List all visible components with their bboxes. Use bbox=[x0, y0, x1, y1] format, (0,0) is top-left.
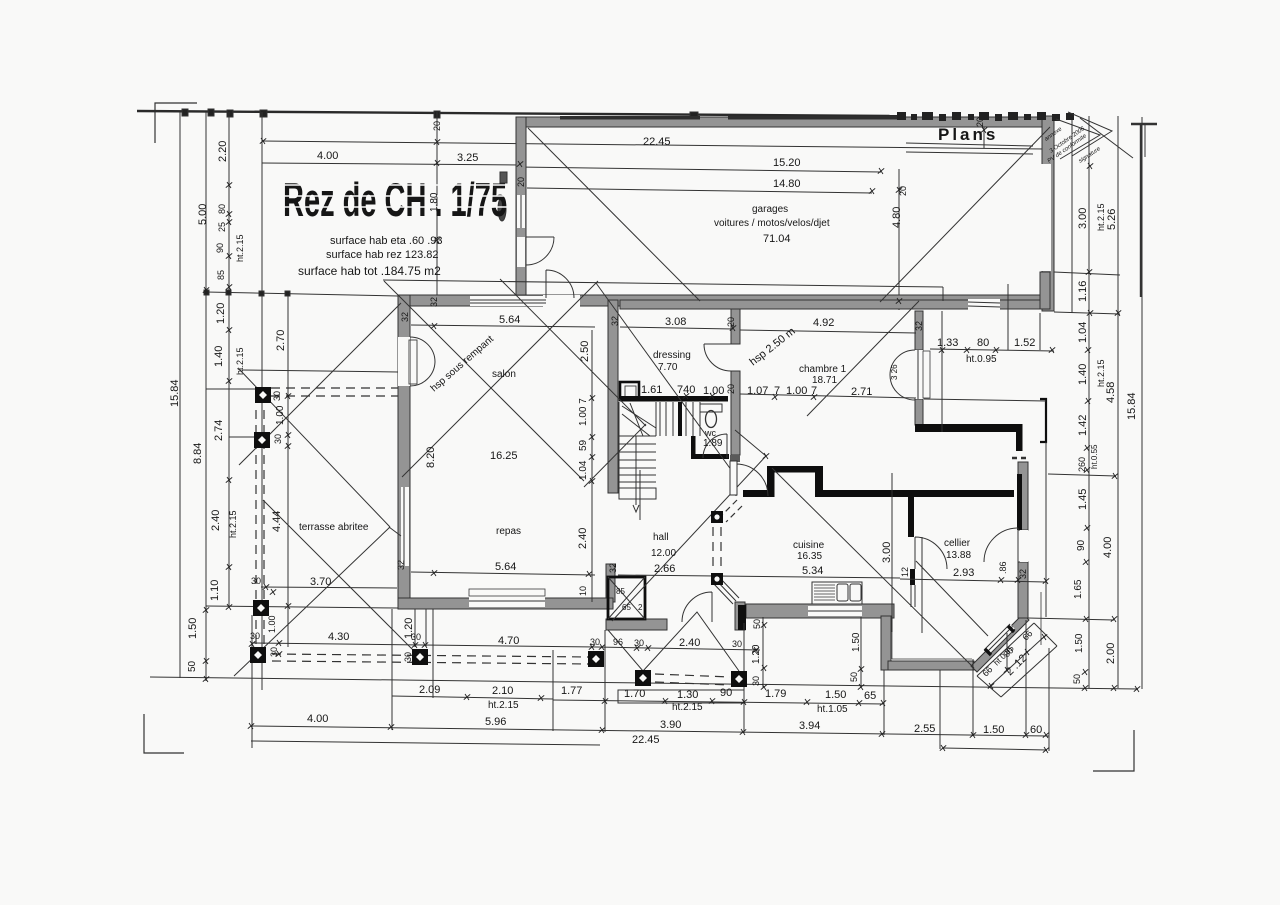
svg-text:50: 50 bbox=[1072, 674, 1082, 684]
svg-text:1.20: 1.20 bbox=[751, 644, 762, 664]
svg-text:surface hab eta .60 .93: surface hab eta .60 .93 bbox=[330, 235, 443, 247]
svg-text:12.00: 12.00 bbox=[651, 548, 676, 559]
svg-text:Plans: Plans bbox=[938, 125, 998, 144]
svg-text:1.16: 1.16 bbox=[1077, 281, 1089, 302]
svg-text:30: 30 bbox=[403, 652, 413, 662]
svg-text:30: 30 bbox=[269, 647, 279, 657]
svg-text:1.07: 1.07 bbox=[747, 385, 768, 397]
svg-text:20: 20 bbox=[898, 186, 908, 196]
svg-text:740: 740 bbox=[677, 384, 695, 396]
svg-text:1.50: 1.50 bbox=[187, 618, 199, 639]
svg-text:1.89: 1.89 bbox=[703, 438, 723, 449]
svg-text:4.30: 4.30 bbox=[328, 631, 349, 643]
svg-text:ht.0.95: ht.0.95 bbox=[966, 354, 997, 365]
svg-text:3.25: 3.25 bbox=[457, 152, 478, 164]
svg-text:80: 80 bbox=[977, 337, 989, 349]
svg-text:7: 7 bbox=[811, 385, 817, 397]
svg-text:20: 20 bbox=[432, 121, 442, 131]
svg-text:30: 30 bbox=[250, 631, 260, 641]
svg-text:ht.2.15: ht.2.15 bbox=[1096, 203, 1106, 231]
svg-text:1.77: 1.77 bbox=[561, 685, 582, 697]
svg-text:ht.2.15: ht.2.15 bbox=[235, 347, 245, 375]
svg-text:13.88: 13.88 bbox=[946, 550, 971, 561]
svg-text:ht.2.15: ht.2.15 bbox=[228, 510, 238, 538]
svg-text:hall: hall bbox=[653, 532, 669, 543]
svg-text:4.00: 4.00 bbox=[307, 713, 328, 725]
svg-text:32: 32 bbox=[610, 316, 620, 326]
svg-text:4.00: 4.00 bbox=[1102, 537, 1114, 558]
svg-text:15.20: 15.20 bbox=[773, 157, 801, 169]
svg-text:32: 32 bbox=[400, 312, 410, 322]
svg-text:1.50: 1.50 bbox=[1074, 633, 1085, 653]
svg-text:90: 90 bbox=[215, 243, 225, 253]
svg-text:1.33: 1.33 bbox=[937, 337, 958, 349]
svg-text:16.35: 16.35 bbox=[797, 551, 822, 562]
svg-text:50: 50 bbox=[752, 619, 762, 629]
svg-text:30: 30 bbox=[751, 676, 761, 686]
svg-text:2.55: 2.55 bbox=[914, 723, 935, 735]
svg-text:1.30: 1.30 bbox=[677, 689, 698, 701]
svg-text:30: 30 bbox=[272, 391, 282, 401]
svg-text:71.04: 71.04 bbox=[763, 233, 791, 245]
svg-text:96: 96 bbox=[613, 637, 623, 647]
svg-text:1.61: 1.61 bbox=[641, 384, 662, 396]
svg-text:hsp sous rempant: hsp sous rempant bbox=[429, 334, 496, 395]
svg-text:cuisine: cuisine bbox=[793, 540, 825, 551]
svg-text:90: 90 bbox=[1076, 539, 1087, 551]
svg-text:5.64: 5.64 bbox=[495, 561, 516, 573]
svg-text:50: 50 bbox=[849, 672, 859, 682]
svg-text:5.34: 5.34 bbox=[802, 565, 823, 577]
svg-text:voitures / motos/velos/djet: voitures / motos/velos/djet bbox=[714, 218, 830, 229]
svg-text:7.70: 7.70 bbox=[658, 362, 678, 373]
svg-text:14.80: 14.80 bbox=[773, 178, 801, 190]
svg-text:1.65: 1.65 bbox=[1073, 579, 1084, 599]
svg-text:5.96: 5.96 bbox=[485, 716, 506, 728]
svg-text:2.00: 2.00 bbox=[1105, 643, 1117, 664]
svg-text:dressing: dressing bbox=[653, 350, 691, 361]
svg-text:59: 59 bbox=[578, 439, 589, 451]
svg-text:terrasse abritee: terrasse abritee bbox=[299, 522, 369, 533]
svg-text:1.00: 1.00 bbox=[786, 385, 807, 397]
svg-text:3.00: 3.00 bbox=[1077, 208, 1089, 229]
svg-text:1.04: 1.04 bbox=[1077, 322, 1089, 343]
svg-text:cellier: cellier bbox=[944, 538, 971, 549]
svg-text:7: 7 bbox=[774, 385, 780, 397]
svg-text:1.45: 1.45 bbox=[1077, 489, 1089, 510]
svg-text:32: 32 bbox=[914, 321, 924, 331]
svg-text:2.20: 2.20 bbox=[217, 141, 229, 162]
svg-text:1.80: 1.80 bbox=[429, 192, 440, 212]
svg-text:ht.0.55: ht.0.55 bbox=[1090, 444, 1099, 469]
svg-text:30: 30 bbox=[590, 637, 600, 647]
svg-text:hsp 2.50 m: hsp 2.50 m bbox=[747, 325, 797, 368]
svg-text:ht.2.15: ht.2.15 bbox=[672, 702, 703, 713]
svg-text:surface hab rez 123.82: surface hab rez 123.82 bbox=[326, 249, 439, 261]
svg-text:1.50: 1.50 bbox=[983, 724, 1004, 736]
svg-text:ht.2.15: ht.2.15 bbox=[488, 700, 519, 711]
svg-text:1.70: 1.70 bbox=[624, 688, 645, 700]
svg-text:1.50: 1.50 bbox=[851, 632, 862, 652]
svg-text:1.00: 1.00 bbox=[275, 405, 286, 425]
svg-text:repas: repas bbox=[496, 526, 521, 537]
svg-text:5.64: 5.64 bbox=[499, 314, 520, 326]
svg-text:signature: signature bbox=[1078, 146, 1103, 165]
svg-text:chambre 1: chambre 1 bbox=[799, 364, 847, 375]
svg-text:2.74: 2.74 bbox=[213, 420, 225, 441]
svg-text:1.52: 1.52 bbox=[1014, 337, 1035, 349]
svg-text:4.58: 4.58 bbox=[1105, 382, 1117, 403]
svg-text:12: 12 bbox=[900, 567, 910, 577]
svg-text:65: 65 bbox=[864, 690, 876, 702]
svg-text:2.40: 2.40 bbox=[210, 510, 222, 531]
svg-text:2.66: 2.66 bbox=[654, 563, 675, 575]
svg-text:1.79: 1.79 bbox=[765, 688, 786, 700]
svg-text:2.40: 2.40 bbox=[577, 528, 589, 549]
svg-text:15.84: 15.84 bbox=[169, 379, 181, 407]
svg-text:22.45: 22.45 bbox=[643, 136, 671, 148]
svg-text:80: 80 bbox=[217, 204, 227, 214]
svg-text:5.26: 5.26 bbox=[1106, 209, 1118, 230]
svg-text:1.42: 1.42 bbox=[1077, 415, 1089, 436]
svg-text:85: 85 bbox=[616, 587, 625, 596]
svg-text:Rez de CH . 1/75: Rez de CH . 1/75 bbox=[283, 173, 507, 226]
svg-text:8.20: 8.20 bbox=[425, 447, 437, 468]
svg-text:3 26: 3 26 bbox=[890, 364, 899, 380]
svg-text:1.00 7: 1.00 7 bbox=[578, 398, 589, 426]
svg-text:22.45: 22.45 bbox=[632, 734, 660, 746]
svg-text:1.00: 1.00 bbox=[267, 615, 277, 633]
svg-text:25: 25 bbox=[217, 222, 227, 232]
svg-text:90: 90 bbox=[720, 687, 732, 699]
svg-text:4.00: 4.00 bbox=[317, 150, 338, 162]
svg-text:1.40: 1.40 bbox=[1077, 364, 1089, 385]
svg-text:1.40: 1.40 bbox=[213, 346, 225, 367]
svg-text:3.94: 3.94 bbox=[799, 720, 820, 732]
svg-text:20: 20 bbox=[726, 317, 736, 327]
svg-text:3.08: 3.08 bbox=[665, 316, 686, 328]
svg-text:2.71: 2.71 bbox=[851, 386, 872, 398]
svg-text:85: 85 bbox=[216, 270, 226, 280]
svg-text:30: 30 bbox=[251, 576, 261, 586]
svg-text:30: 30 bbox=[273, 434, 283, 444]
svg-text:1.00: 1.00 bbox=[703, 385, 724, 397]
svg-text:4.80: 4.80 bbox=[891, 207, 903, 228]
svg-text:1.20: 1.20 bbox=[403, 618, 415, 639]
svg-text:4.44: 4.44 bbox=[271, 511, 283, 532]
svg-text:32: 32 bbox=[608, 563, 618, 573]
svg-text:garages: garages bbox=[752, 204, 788, 215]
svg-text:.86: .86 bbox=[998, 561, 1008, 574]
svg-text:8.84: 8.84 bbox=[192, 443, 204, 464]
svg-text:3.00: 3.00 bbox=[881, 542, 893, 563]
svg-text:1.04: 1.04 bbox=[578, 460, 589, 480]
svg-text:66: 66 bbox=[1020, 628, 1034, 642]
svg-text:ht.2.15: ht.2.15 bbox=[235, 234, 245, 262]
svg-text:1.50: 1.50 bbox=[825, 689, 846, 701]
svg-text:10: 10 bbox=[578, 586, 588, 596]
svg-text:5.00: 5.00 bbox=[197, 204, 209, 225]
svg-text:2.70: 2.70 bbox=[275, 330, 287, 351]
svg-text:2: 2 bbox=[638, 603, 643, 612]
svg-text:20: 20 bbox=[726, 384, 736, 394]
svg-text:1.10: 1.10 bbox=[209, 580, 221, 601]
svg-text:20: 20 bbox=[516, 177, 526, 187]
svg-text:30: 30 bbox=[634, 638, 644, 648]
svg-text:surface hab tot .184.75 m2: surface hab tot .184.75 m2 bbox=[298, 264, 441, 278]
svg-text:2.93: 2.93 bbox=[953, 567, 974, 579]
svg-text:60: 60 bbox=[1030, 724, 1042, 736]
svg-text:2.50: 2.50 bbox=[579, 341, 591, 362]
svg-text:4.92: 4.92 bbox=[813, 317, 834, 329]
svg-text:wc: wc bbox=[704, 428, 716, 438]
svg-text:15.84: 15.84 bbox=[1126, 392, 1138, 420]
svg-text:3.70: 3.70 bbox=[310, 576, 331, 588]
svg-text:2.09: 2.09 bbox=[419, 684, 440, 696]
svg-text:260: 260 bbox=[1077, 457, 1087, 472]
svg-text:65: 65 bbox=[622, 603, 631, 612]
svg-text:50: 50 bbox=[187, 660, 198, 672]
svg-text:2.10: 2.10 bbox=[492, 685, 513, 697]
svg-text:4.70: 4.70 bbox=[498, 635, 519, 647]
svg-text:32: 32 bbox=[396, 560, 406, 570]
svg-text:ht.1.05: ht.1.05 bbox=[817, 704, 848, 715]
svg-text:16.25: 16.25 bbox=[490, 450, 518, 462]
svg-text:30: 30 bbox=[732, 639, 742, 649]
svg-text:3.90: 3.90 bbox=[660, 719, 681, 731]
svg-text:2.40: 2.40 bbox=[679, 637, 700, 649]
svg-text:salon: salon bbox=[492, 369, 516, 380]
svg-text:32: 32 bbox=[429, 297, 439, 307]
svg-text:32: 32 bbox=[1018, 569, 1028, 579]
svg-text:1.20: 1.20 bbox=[215, 303, 227, 324]
